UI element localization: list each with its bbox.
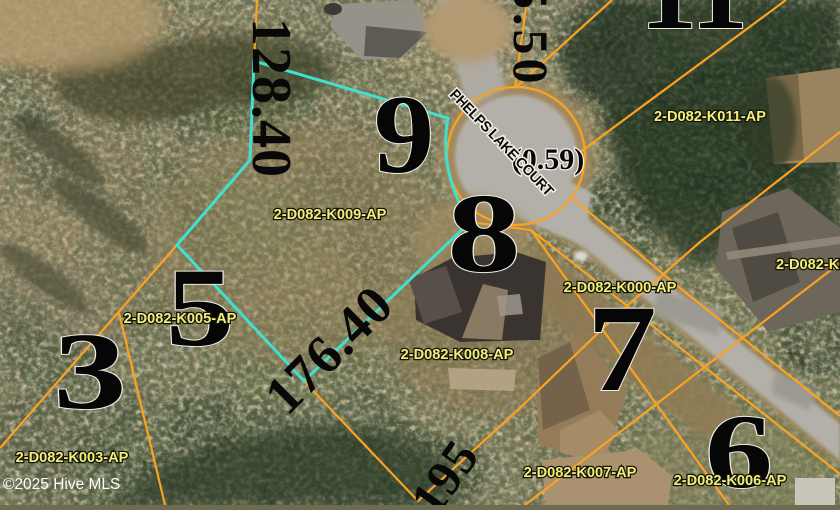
svg-text:©2025 Hive MLS: ©2025 Hive MLS xyxy=(3,476,120,493)
svg-text:2-D082-K000-AP: 2-D082-K000-AP xyxy=(564,280,677,296)
svg-text:2-D082-K007-AP: 2-D082-K007-AP xyxy=(524,465,637,481)
svg-text:2-D082-K011-AP: 2-D082-K011-AP xyxy=(654,109,766,125)
svg-text:2-D082-K006-AP: 2-D082-K006-AP xyxy=(674,473,787,489)
svg-text:2-D082-K003-AP: 2-D082-K003-AP xyxy=(16,450,129,466)
svg-text:2-D082-K011-AP: 2-D082-K011-AP xyxy=(776,257,840,273)
svg-text:8: 8 xyxy=(447,171,520,296)
svg-text:2-D082-K005-AP: 2-D082-K005-AP xyxy=(124,311,237,327)
svg-text:5: 5 xyxy=(166,246,234,370)
svg-text:2-D082-K009-AP: 2-D082-K009-AP xyxy=(274,207,387,223)
svg-text:3: 3 xyxy=(53,310,126,432)
svg-text:9: 9 xyxy=(374,73,434,197)
svg-text:2-D082-K008-AP: 2-D082-K008-AP xyxy=(401,347,514,363)
svg-text:7: 7 xyxy=(587,281,656,418)
svg-text:5.50: 5.50 xyxy=(503,0,559,88)
svg-text:11: 11 xyxy=(640,0,748,53)
svg-text:128.40: 128.40 xyxy=(240,18,302,178)
